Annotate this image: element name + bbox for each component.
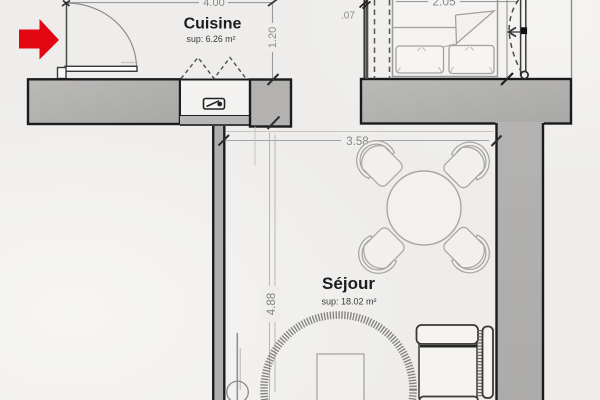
svg-text:2.05: 2.05 — [432, 0, 456, 9]
svg-text:Séjour: Séjour — [322, 274, 375, 293]
svg-text:4.88: 4.88 — [266, 293, 278, 315]
svg-text:1.20: 1.20 — [267, 27, 279, 48]
svg-text:.07: .07 — [341, 11, 355, 22]
svg-text:sup: 6.26 m²: sup: 6.26 m² — [187, 34, 236, 44]
svg-text:Cuisine: Cuisine — [184, 16, 242, 33]
svg-text:4.00: 4.00 — [203, 0, 224, 9]
svg-text:sup: 18.02 m²: sup: 18.02 m² — [321, 297, 376, 307]
